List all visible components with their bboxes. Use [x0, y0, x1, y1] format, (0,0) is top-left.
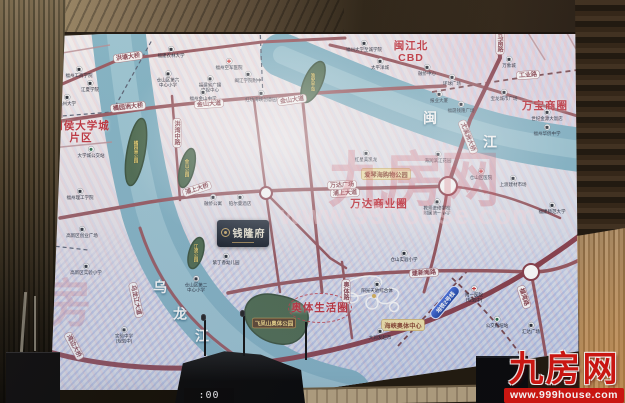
poi-label: 万象城	[502, 63, 516, 68]
poi-marker: 大学城公交站	[70, 146, 112, 158]
school-icon	[121, 326, 128, 333]
poi-label: 福晟钱隆广场	[447, 108, 474, 113]
poi-marker: 宝龙城市广场	[483, 89, 525, 101]
school-icon	[200, 89, 207, 96]
poi-marker: 福州大学至诚学院	[343, 40, 385, 52]
road-name-label: 湾边大桥	[63, 331, 85, 361]
building-icon	[528, 322, 535, 329]
building-icon	[510, 175, 517, 182]
school-icon	[361, 40, 368, 47]
microphone	[243, 316, 245, 356]
poi-marker: 仓山区第二 中心小学	[175, 275, 217, 292]
led-screen: 地铁2号线 爱琴海购物公园 海峡奥体中心 飞凤山奥体公园 钱隆府 闽江北 CBD…	[0, 0, 625, 403]
poi-marker: 阳光天地综合体	[356, 281, 398, 293]
school-icon	[549, 202, 556, 209]
district-zone-label: 万达商业圈	[350, 198, 408, 210]
poi-label: 上渡建材市场	[499, 182, 526, 187]
poi-marker: 福建农林大学	[150, 46, 192, 58]
site-logo-brand: 九房网	[504, 352, 624, 387]
poi-marker: 福州理工学院	[59, 188, 101, 200]
park-name-label: 淮安半岛	[310, 73, 317, 91]
road-name-label: 洪湾中路	[173, 118, 182, 148]
project-logo-icon	[221, 228, 230, 237]
poi-label: 大学城公交站	[77, 153, 104, 158]
building-icon	[377, 58, 384, 65]
school-icon	[223, 253, 230, 260]
river-name-char: 江	[483, 132, 497, 152]
poi-label: 仓山区第六 中心小学	[157, 77, 180, 87]
map-labels-layer: 地铁2号线 爱琴海购物公园 海峡奥体中心 飞凤山奥体公园 钱隆府 闽江北 CBD…	[0, 0, 625, 403]
district-zone-label: 奥体生活圈	[291, 302, 349, 314]
poi-marker: 仓山实验小学	[383, 250, 425, 262]
poi-label: 福建师范大学	[538, 209, 565, 214]
poi-label: 海润滨江花园	[424, 158, 451, 163]
building-icon	[424, 64, 431, 71]
poi-label: 高新区创业广场	[66, 233, 98, 238]
building-icon	[374, 281, 381, 288]
poi-marker: 福州工商学院	[58, 66, 100, 78]
building-icon	[449, 74, 456, 81]
school-icon	[544, 124, 551, 131]
poi-label: 大润发超市	[369, 335, 392, 340]
park-name-label: 金山公园	[184, 159, 191, 177]
hospital-icon	[471, 285, 478, 292]
poi-marker: 海润滨江花园	[417, 151, 459, 163]
poi-label: 高新区实验小学	[70, 270, 102, 275]
poi-label: 阳光天地综合体	[361, 288, 393, 293]
microphone-head	[201, 314, 206, 321]
hospital-icon	[478, 168, 485, 175]
road-name-label: 福湾路	[516, 284, 532, 309]
microphone	[305, 322, 307, 360]
timer-display: :00	[184, 388, 234, 403]
park-name-label: 橘园洲公园	[133, 141, 140, 164]
poi-label: 仓山实验小学	[390, 257, 417, 262]
poi-label: 红坊海峡创意园	[245, 97, 277, 102]
hospital-icon	[226, 58, 233, 65]
poi-label: 实验中学 (规划中)	[115, 333, 133, 343]
river-name-char: 闽	[423, 108, 437, 128]
river-name-char: 江	[195, 326, 209, 346]
poi-label: 公交枢纽站	[486, 323, 509, 328]
site-logo-url: www.999house.com	[504, 388, 624, 403]
poi-marker: 仓山区医院	[460, 168, 502, 180]
project-divider	[232, 242, 254, 243]
poi-label: 世纪金源大饭店	[531, 116, 563, 121]
poi-marker: 福建师范大学	[531, 202, 573, 214]
building-icon	[79, 226, 86, 233]
poi-marker: 太平洋城	[359, 58, 401, 70]
poi-label: 福州金山中学	[189, 96, 216, 101]
river-name-char: 龙	[173, 304, 187, 324]
poi-label: 仓山区第二 中心小学	[185, 282, 208, 292]
project-marker-qianlongfu: 钱隆府	[217, 220, 269, 247]
poi-marker: 红坊海峡创意园	[240, 90, 282, 102]
road-name-label: 工业路	[516, 70, 540, 80]
ceiling-frame	[0, 0, 625, 34]
building-icon	[258, 90, 265, 97]
road-name-label: 万达广场	[327, 180, 357, 190]
mall-icon	[377, 328, 384, 335]
school-icon	[87, 80, 94, 87]
road-name-label: 橘园洲大桥	[110, 101, 146, 114]
project-name: 钱隆府	[233, 225, 266, 240]
building-icon	[458, 101, 465, 108]
school-icon	[165, 70, 172, 77]
building-icon	[207, 75, 214, 82]
poi-marker: 红星美凯龙	[345, 150, 387, 162]
microphone	[204, 320, 206, 356]
poi-marker: 高新区创业广场	[61, 226, 103, 238]
poi-marker: 万象城	[488, 56, 530, 68]
river-name-char: 乌	[153, 277, 167, 297]
school-icon	[245, 71, 252, 78]
school-icon	[193, 275, 200, 282]
school-icon	[76, 66, 83, 73]
poi-label: 汇达广场	[522, 329, 540, 334]
shopping-park-label: 爱琴海购物公园	[361, 168, 411, 180]
poi-marker: 铂尔曼酒店	[219, 194, 261, 206]
poi-label: 福州大学至诚学院	[346, 47, 382, 52]
bus-icon	[494, 316, 501, 323]
microphone-head	[240, 310, 245, 317]
poi-marker: 世纪金源大饭店	[526, 109, 568, 121]
feifengshan-park-label: 飞凤山奥体公园	[252, 318, 296, 328]
poi-label: 福州工商学院	[65, 73, 92, 78]
poi-marker: 大润发超市	[359, 328, 401, 340]
poi-marker: 高新区实验小学	[65, 263, 107, 275]
poi-label: 铂尔曼酒店	[229, 201, 252, 206]
poi-label: 环球广场	[443, 81, 461, 86]
poi-marker: 环球广场	[431, 74, 473, 86]
poi-marker: 闽江学院附中	[227, 71, 269, 83]
mall-icon	[506, 56, 513, 63]
poi-label: 福州理工学院	[66, 195, 93, 200]
poi-marker: 福州空军医院	[208, 58, 250, 70]
poi-label: 附一医院 (规划中)	[465, 292, 483, 302]
road-name-label: 奥体路	[342, 279, 351, 303]
road-name-label: 建新南路	[409, 268, 439, 279]
poi-label: 红星美凯龙	[355, 157, 378, 162]
road-name-label: 洪塘大桥	[113, 51, 144, 64]
poi-label: 福州华侨中学	[533, 131, 560, 136]
school-icon	[168, 46, 175, 53]
building-icon	[237, 194, 244, 201]
poi-marker: 江夏学院	[69, 80, 111, 92]
poi-label: 仓山区医院	[470, 175, 493, 180]
poi-label: 江夏学院	[81, 87, 99, 92]
stand-leg	[34, 296, 36, 351]
poi-marker: 福州金山中学	[182, 89, 224, 101]
school-icon	[77, 188, 84, 195]
poi-marker: 福州华侨中学	[526, 124, 568, 136]
mall-icon	[501, 89, 508, 96]
bus-icon	[88, 146, 95, 153]
floor-equipment	[6, 352, 60, 403]
poi-marker: 实验中学 (规划中)	[103, 326, 145, 343]
site-logo: 九房网 www.999house.com	[504, 352, 624, 403]
poi-label: 教师进修学校 附属第一小学	[423, 205, 450, 215]
poi-label: 太平洋城	[371, 65, 389, 70]
poi-label: 闽江学院附中	[234, 78, 261, 83]
building-icon	[436, 91, 443, 98]
poi-marker: 紫丁香幼儿园	[205, 253, 247, 265]
poi-marker: 教师进修学校 附属第一小学	[416, 198, 458, 215]
building-icon	[544, 109, 551, 116]
road-name-label: 尤溪洲大桥	[457, 119, 479, 155]
school-icon	[64, 94, 71, 101]
school-icon	[401, 250, 408, 257]
poi-label: 福建农林大学	[157, 53, 184, 58]
building-icon	[435, 151, 442, 158]
mall-icon	[363, 150, 370, 157]
building-icon	[210, 194, 217, 201]
road-name-label: 乌龙江大道	[128, 282, 144, 319]
park-name-label: 江滨公园	[193, 244, 200, 262]
poi-label: 宝龙城市广场	[490, 96, 517, 101]
poi-marker: 汇达广场	[510, 322, 552, 334]
photo-of-led-screen: 地铁2号线 爱琴海购物公园 海峡奥体中心 飞凤山奥体公园 钱隆府 闽江北 CBD…	[0, 0, 625, 403]
poi-label: 福州空军医院	[215, 65, 242, 70]
poi-marker: 福晟钱隆广场	[440, 101, 482, 113]
poi-marker: 仓山区第六 中心小学	[147, 70, 189, 87]
poi-label: 紫丁香幼儿园	[212, 260, 239, 265]
school-icon	[434, 198, 441, 205]
school-icon	[83, 263, 90, 270]
